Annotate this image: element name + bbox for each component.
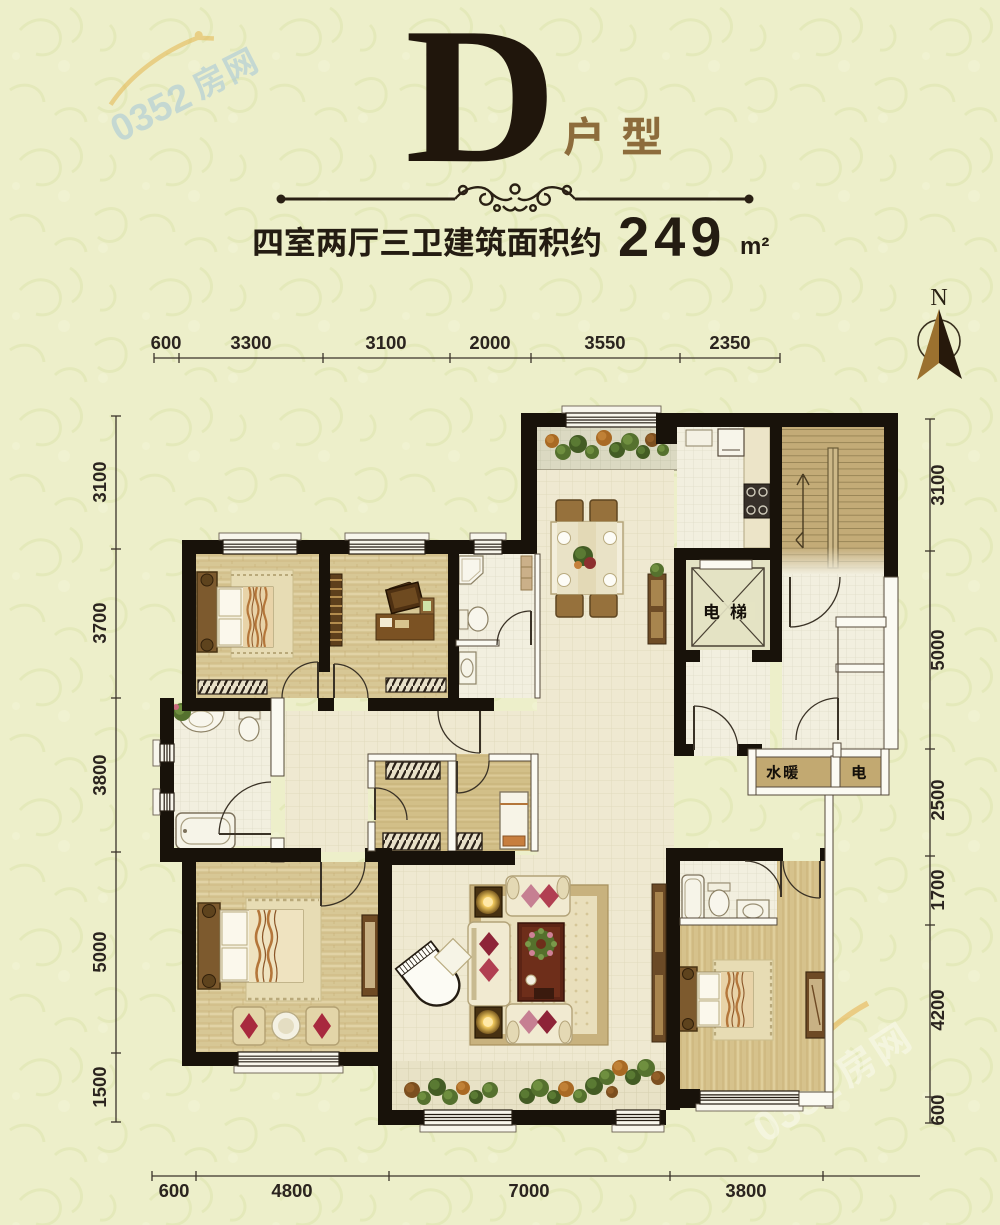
svg-text:600: 600 — [159, 1180, 190, 1201]
svg-text:600: 600 — [151, 332, 182, 353]
svg-text:4200: 4200 — [927, 989, 948, 1030]
svg-text:3700: 3700 — [89, 602, 110, 643]
svg-text:5000: 5000 — [89, 931, 110, 972]
svg-text:600: 600 — [927, 1095, 948, 1126]
svg-text:3800: 3800 — [89, 754, 110, 795]
svg-text:249: 249 — [618, 205, 726, 268]
svg-text:2000: 2000 — [469, 332, 510, 353]
svg-text:5000: 5000 — [927, 629, 948, 670]
svg-text:3800: 3800 — [725, 1180, 766, 1201]
svg-text:N: N — [930, 285, 947, 311]
svg-text:2500: 2500 — [927, 779, 948, 820]
svg-text:1700: 1700 — [927, 869, 948, 910]
svg-text:7000: 7000 — [508, 1180, 549, 1201]
svg-text:3550: 3550 — [584, 332, 625, 353]
svg-text:2350: 2350 — [709, 332, 750, 353]
svg-text:m²: m² — [740, 233, 769, 260]
svg-text:3100: 3100 — [927, 464, 948, 505]
svg-text:1500: 1500 — [89, 1066, 110, 1107]
svg-text:3100: 3100 — [89, 461, 110, 502]
svg-text:4800: 4800 — [271, 1180, 312, 1201]
svg-text:3100: 3100 — [365, 332, 406, 353]
svg-text:D: D — [405, 0, 557, 203]
svg-text:3300: 3300 — [230, 332, 271, 353]
